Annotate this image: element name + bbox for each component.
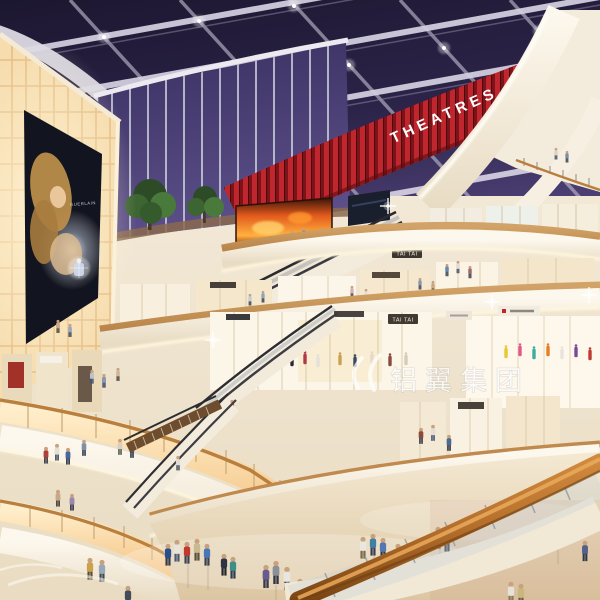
- rendering-canvas: GUERLAIN THEATRES: [0, 0, 600, 600]
- tai-tai-sign-upper-text: TAI TAI: [396, 252, 417, 258]
- store-sign-block: [372, 272, 400, 278]
- tai-tai-sign-lower-text: TAI TAI: [392, 318, 413, 324]
- person-figure: [125, 586, 131, 600]
- store-sign-block: [458, 402, 484, 409]
- tai-tai-sign-lower: TAI TAI: [388, 314, 418, 324]
- watermark-text: 铝翼集团: [390, 366, 530, 396]
- perfume-bottle: [68, 257, 90, 279]
- store-sign-block: [210, 282, 236, 288]
- red-apparel-display: [8, 362, 24, 388]
- dark-led-screen: [348, 190, 390, 226]
- store-doorway: [78, 366, 92, 402]
- person-figure: [518, 584, 524, 600]
- mall-atrium-rendering: GUERLAIN THEATRES: [0, 0, 600, 600]
- store-sign-block: [226, 314, 250, 320]
- store-sign-block: [40, 356, 62, 363]
